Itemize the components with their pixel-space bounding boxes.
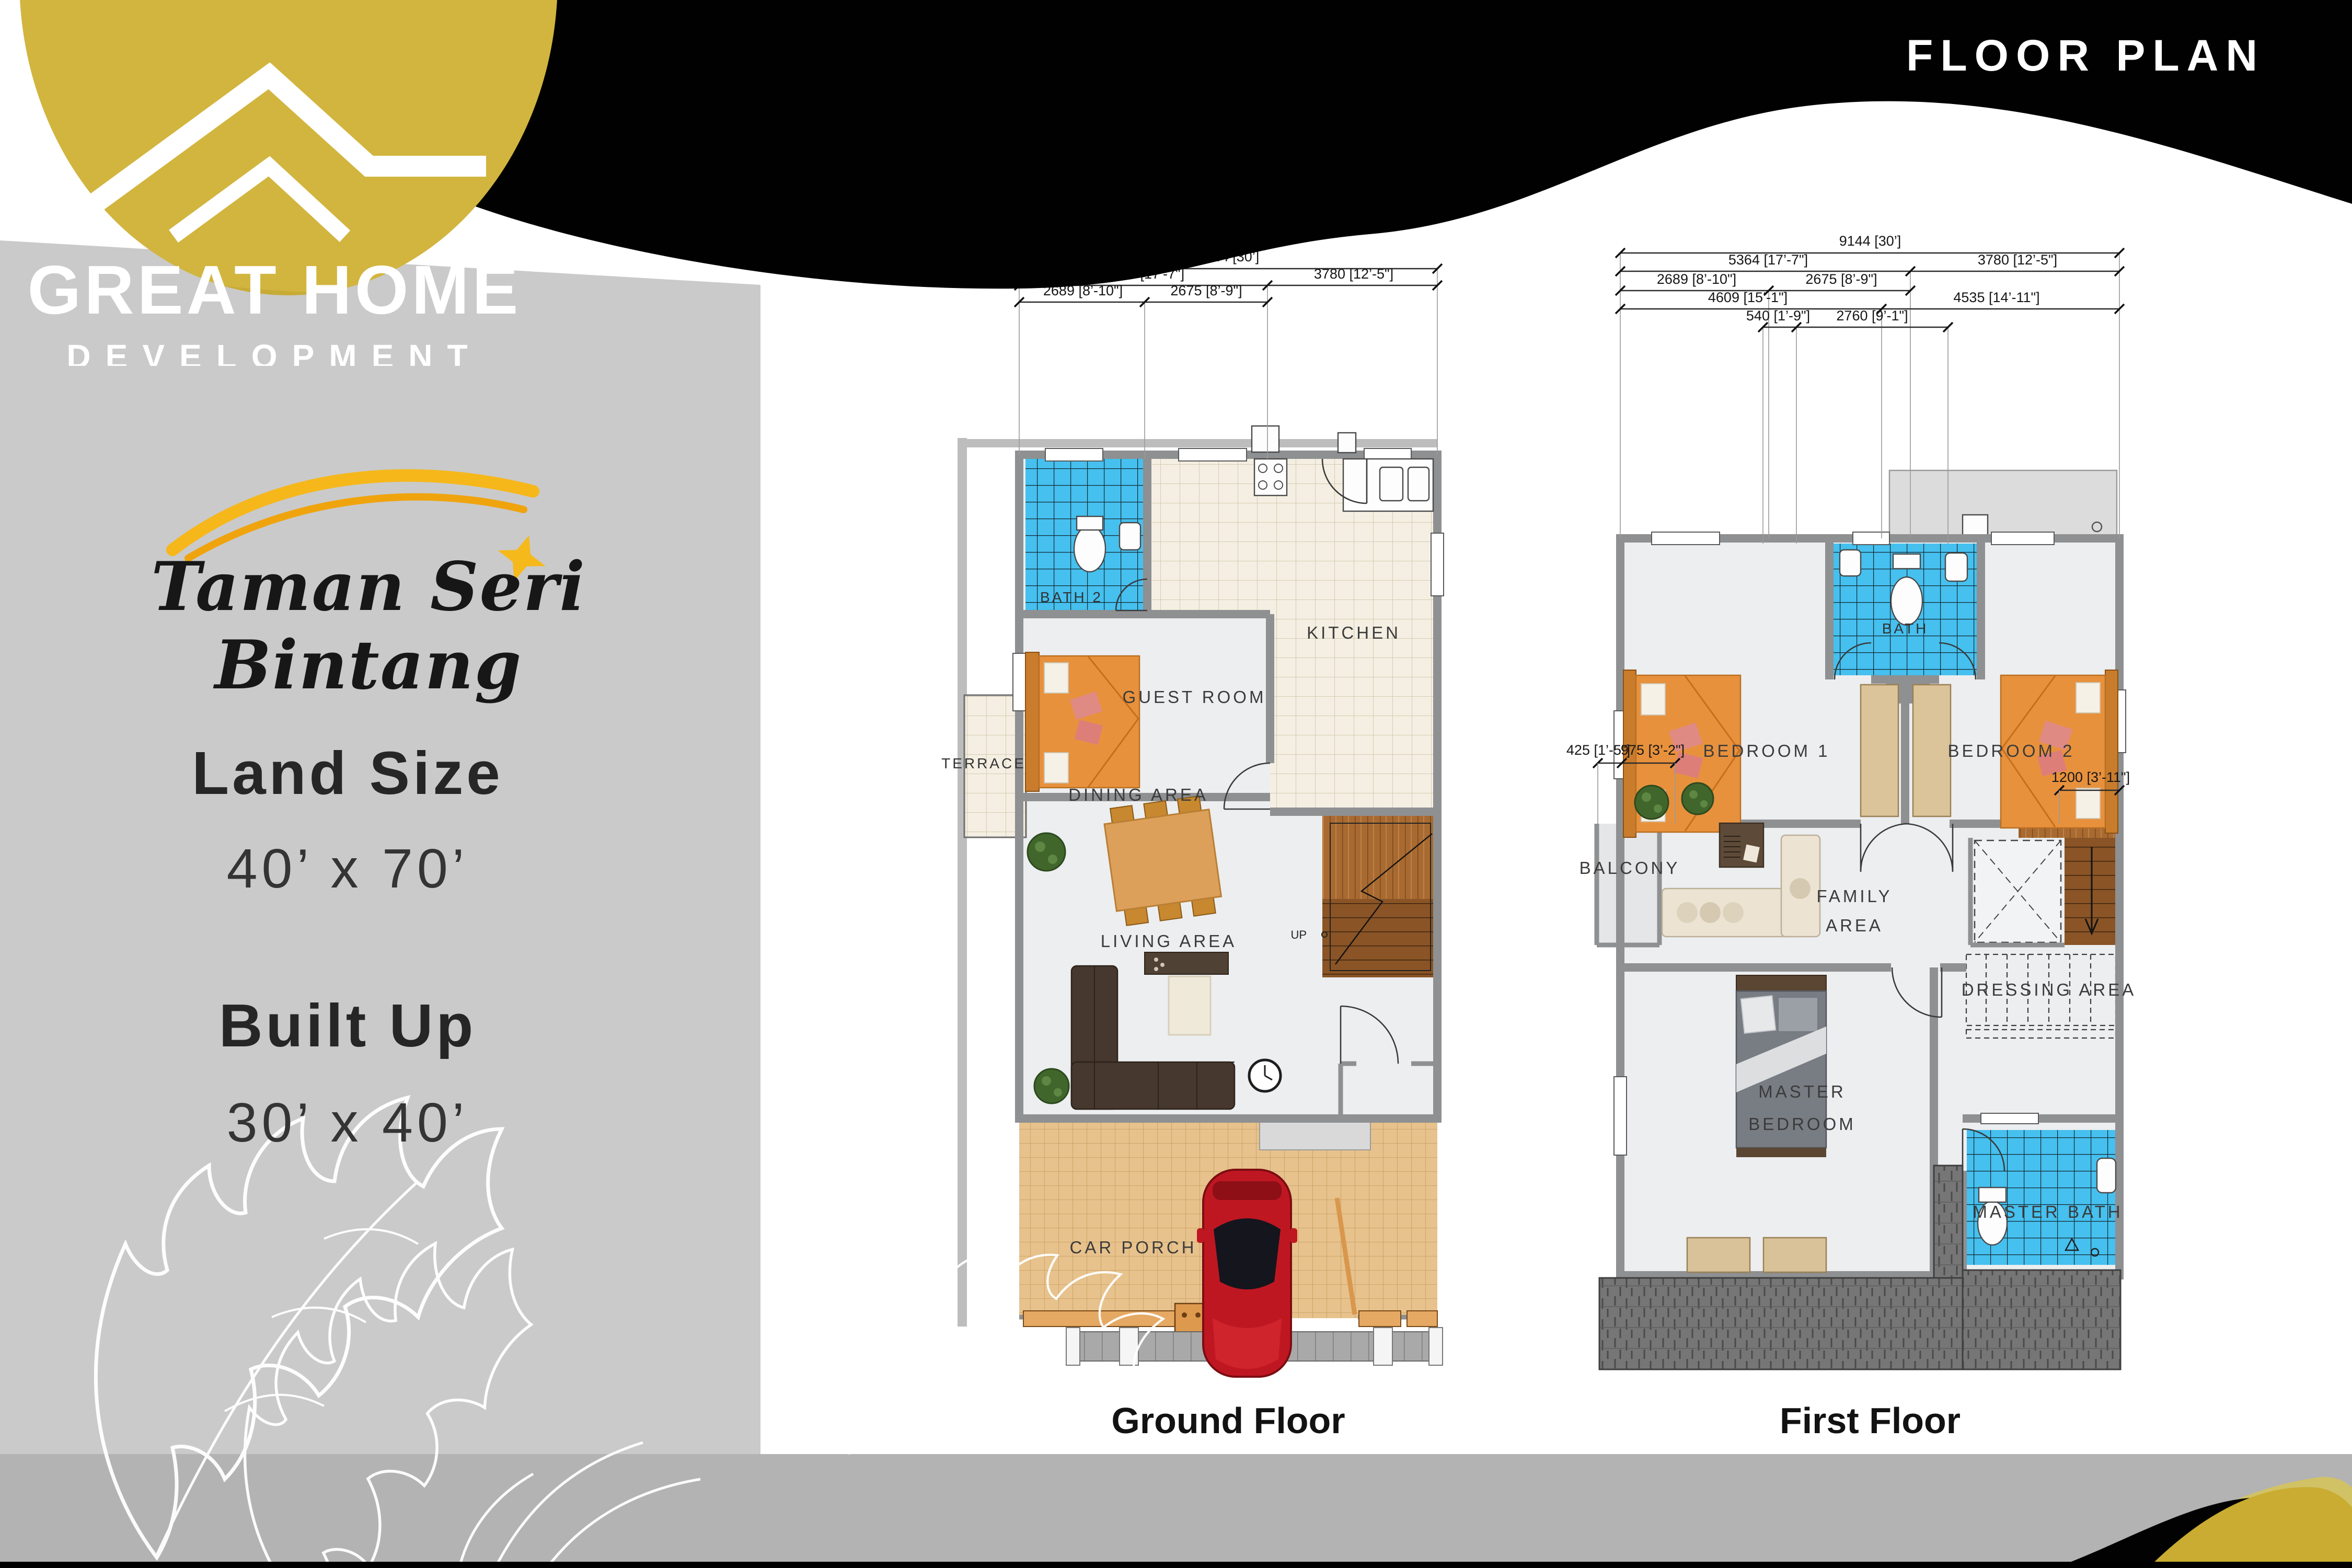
window xyxy=(1431,533,1444,596)
window xyxy=(1652,532,1720,545)
plant xyxy=(1034,1069,1069,1103)
room-label-carporch: CAR PORCH xyxy=(1069,1238,1196,1257)
logo-name-line2: DEVELOPMENT xyxy=(66,338,482,366)
logo-badge: GREAT HOME DEVELOPMENT Great living, qua… xyxy=(0,0,627,366)
room-label-master-1: MASTER xyxy=(1758,1082,1846,1101)
porch-roof xyxy=(1889,470,2117,538)
stairs-up-label: UP xyxy=(1290,928,1307,941)
dim-side-b: 975 [3’-2"] xyxy=(1621,742,1685,758)
bench xyxy=(1763,1238,1826,1272)
room-label-masterbath: MASTER BATH xyxy=(1973,1202,2123,1221)
dim-bed2: 1200 [3’-11"] xyxy=(2051,769,2130,785)
built-up-label: Built Up xyxy=(86,990,609,1060)
window xyxy=(1991,532,2054,545)
exterior-unit xyxy=(1338,433,1356,453)
room-label-family-2: AREA xyxy=(1826,916,1883,935)
basin-icon xyxy=(1840,550,1861,576)
toilet-tank xyxy=(1893,554,1920,569)
room-label-kitchen: KITCHEN xyxy=(1307,623,1401,642)
entry-pad xyxy=(1260,1119,1370,1150)
fence-segment xyxy=(1359,1311,1401,1327)
window xyxy=(1614,1077,1627,1155)
room-label-bath: BATH xyxy=(1882,620,1929,637)
roof-shingles xyxy=(1599,1278,1965,1369)
logo-name-line1: GREAT HOME xyxy=(28,251,522,328)
stairs-landing xyxy=(1322,815,1437,899)
car xyxy=(1197,1170,1297,1377)
ground-floor-plan: UP xyxy=(941,249,1444,1441)
tv-console xyxy=(1145,952,1228,974)
bottom-black-strip xyxy=(0,1562,2352,1568)
room-label-bath2: BATH 2 xyxy=(1040,589,1103,605)
room-label-bedroom2: BEDROOM 2 xyxy=(1947,741,2074,760)
gate-pillar xyxy=(1374,1328,1392,1365)
page-title: FLOOR PLAN xyxy=(1903,30,2268,81)
gate-pillar xyxy=(1066,1328,1080,1365)
room-label-bedroom1: BEDROOM 1 xyxy=(1703,741,1830,760)
room-label-master-2: BEDROOM xyxy=(1748,1114,1856,1134)
fence-segment xyxy=(1407,1311,1437,1327)
toilet-tank xyxy=(1077,516,1103,530)
window xyxy=(1853,532,1889,545)
room-label-family-1: FAMILY xyxy=(1817,886,1893,906)
ground-floor-caption: Ground Floor xyxy=(1111,1400,1345,1441)
window xyxy=(1179,448,1247,461)
room-label-dressing: DRESSING AREA xyxy=(1962,980,2137,999)
exterior-unit xyxy=(1252,426,1279,452)
guest-bed xyxy=(1025,652,1139,791)
room-label-terrace: TERRACE xyxy=(941,755,1026,771)
room-label-balcony: BALCONY xyxy=(1579,858,1680,878)
toilet-icon xyxy=(1891,577,1922,625)
lot-wall-top xyxy=(967,439,1437,447)
leaf-decoration xyxy=(96,1098,1172,1568)
window xyxy=(1045,448,1103,461)
bench xyxy=(1687,1238,1750,1272)
sink-icon xyxy=(1408,467,1429,501)
basin-icon xyxy=(1945,553,1967,581)
window xyxy=(1013,653,1025,711)
lot-wall-left xyxy=(958,438,967,1327)
toilet-tank xyxy=(1979,1187,2006,1202)
roof-shingles xyxy=(1963,1270,2120,1369)
project-name: Taman Seri Bintang xyxy=(0,548,737,705)
toilet-icon xyxy=(1074,526,1105,572)
bottom-right-decoration xyxy=(2012,1443,2352,1568)
wardrobe xyxy=(1913,685,1951,816)
rug xyxy=(1169,976,1210,1035)
basin-icon xyxy=(2097,1158,2116,1193)
land-size-value: 40’ x 70’ xyxy=(86,837,609,901)
stove-icon xyxy=(1254,459,1287,495)
first-floor-plan: BATH BEDROOM 1 BEDROOM 2 BALCONY FAMILY … xyxy=(1566,233,2136,1441)
plant xyxy=(1028,833,1065,871)
plant xyxy=(1682,783,1713,814)
window xyxy=(1981,1113,2038,1124)
basin-icon xyxy=(1120,523,1140,550)
wardrobe xyxy=(1861,685,1898,816)
stairs-run xyxy=(1322,899,1437,977)
built-up-value: 30’ x 40’ xyxy=(86,1091,609,1155)
plant xyxy=(1635,786,1668,819)
balcony-floor xyxy=(1597,824,1659,945)
room-label-dining: DINING AREA xyxy=(1068,785,1208,804)
sink-icon xyxy=(1380,467,1403,501)
room-label-guest: GUEST ROOM xyxy=(1123,687,1266,707)
roof-shingles xyxy=(1934,1166,1963,1278)
dining-table xyxy=(1102,795,1223,927)
land-size-label: Land Size xyxy=(86,738,609,808)
sofa xyxy=(1071,1062,1235,1109)
room-label-living: LIVING AREA xyxy=(1101,931,1237,951)
gate-pillar xyxy=(1429,1328,1443,1365)
first-floor-caption: First Floor xyxy=(1780,1400,1961,1441)
